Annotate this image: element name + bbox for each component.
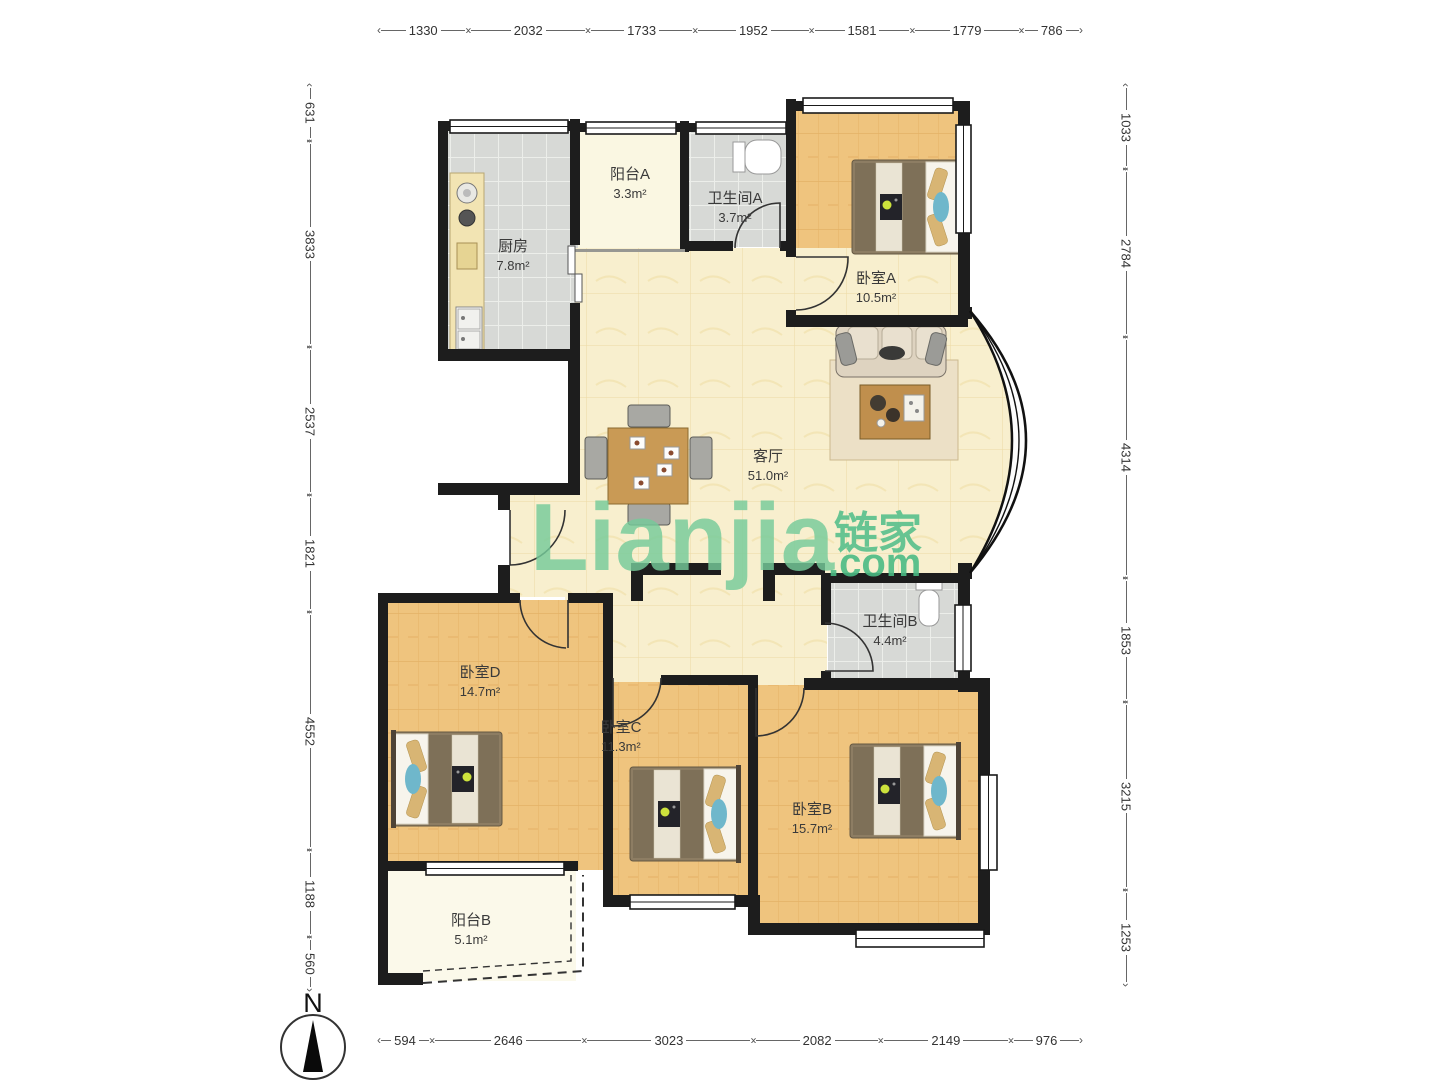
dimension-arrow-icon: ‹ [377, 1034, 381, 1046]
dimension-arrow-icon: ‹ [304, 935, 316, 939]
dimension-segment: ‹4552› [296, 612, 324, 850]
dimension-arrow-icon: ‹ [1120, 83, 1132, 87]
dimension-segment: ‹1821› [296, 495, 324, 611]
dimension-arrow-icon: › [1120, 983, 1132, 987]
dimension-value: 976 [1033, 1034, 1061, 1047]
dimension-segment: ‹1952› [695, 16, 811, 44]
dimension-segment: ‹1188› [296, 850, 324, 937]
toilet-bath-a [733, 140, 781, 174]
dimension-segment: ‹3215› [1112, 702, 1140, 891]
dimension-segment: ‹1330› [378, 16, 468, 44]
dimension-value: 1033 [1120, 110, 1133, 145]
dimension-arrow-icon: ‹ [752, 1034, 756, 1046]
dimension-value: 594 [391, 1034, 419, 1047]
dimension-arrow-icon: ‹ [304, 493, 316, 497]
compass-needle-icon [303, 1020, 323, 1072]
dimension-segment: ‹2149› [881, 1026, 1011, 1054]
dimension-segment: ‹1853› [1112, 578, 1140, 701]
dimension-arrow-icon: ‹ [1021, 24, 1025, 36]
dimension-segment: ‹2646› [432, 1026, 584, 1054]
dimension-arrow-icon: ‹ [1120, 888, 1132, 892]
dimension-arrow-icon: ‹ [1120, 335, 1132, 339]
dimension-value: 1853 [1120, 623, 1133, 658]
dimension-value: 1952 [736, 24, 771, 37]
dimension-line-bottom: ‹594›‹2646›‹3023›‹2082›‹2149›‹976› [378, 1026, 1082, 1054]
dimension-segment: ‹1779› [912, 16, 1021, 44]
dimension-arrow-icon: ‹ [587, 24, 591, 36]
dimension-segment: ‹1033› [1112, 85, 1140, 169]
dimension-arrow-icon: ‹ [304, 139, 316, 143]
dimension-segment: ‹2537› [296, 347, 324, 495]
dimension-value: 2646 [491, 1034, 526, 1047]
bed-c [630, 765, 741, 863]
dimension-value: 1733 [624, 24, 659, 37]
dimension-value: 631 [304, 99, 317, 127]
dimension-segment: ‹1253› [1112, 890, 1140, 985]
dimension-arrow-icon: ‹ [431, 1034, 435, 1046]
dimension-segment: ‹631› [296, 85, 324, 141]
dimension-value: 786 [1038, 24, 1066, 37]
dimension-arrow-icon: ‹ [304, 345, 316, 349]
label-bath-b: 卫生间B 4.4m² [862, 610, 917, 648]
dimension-arrow-icon: ‹ [1120, 700, 1132, 704]
sofa-set [830, 325, 958, 460]
dimension-arrow-icon: ‹ [583, 1034, 587, 1046]
dimension-value: 2032 [511, 24, 546, 37]
dimension-segment: ‹3833› [296, 141, 324, 347]
label-bath-a: 卫生间A 3.7m² [707, 187, 762, 225]
dimension-segment: ‹2032› [468, 16, 588, 44]
dimension-value: 3215 [1120, 779, 1133, 814]
dimension-arrow-icon: ‹ [1120, 167, 1132, 171]
dimension-segment: ‹594› [378, 1026, 432, 1054]
label-bed-d: 卧室D 14.7m² [460, 661, 501, 699]
dimension-value: 1779 [950, 24, 985, 37]
dimension-line-right: ‹1033›‹2784›‹4314›‹1853›‹3215›‹1253› [1112, 85, 1140, 985]
dimension-value: 3833 [304, 227, 317, 262]
label-kitchen: 厨房 7.8m² [496, 235, 529, 273]
dimension-line-left: ‹631›‹3833›‹2537›‹1821›‹4552›‹1188›‹560› [296, 85, 324, 990]
dimension-segment: ‹1733› [588, 16, 695, 44]
dimension-arrow-icon: ‹ [811, 24, 815, 36]
dimension-segment: ‹976› [1011, 1026, 1082, 1054]
dimension-line-top: ‹1330›‹2032›‹1733›‹1952›‹1581›‹1779›‹786… [378, 16, 1082, 44]
dimension-value: 2149 [928, 1034, 963, 1047]
bed-b [850, 742, 961, 840]
dimension-segment: ‹1581› [812, 16, 913, 44]
compass-icon [280, 1014, 346, 1080]
dimension-segment: ‹3023› [584, 1026, 753, 1054]
dimension-arrow-icon: ‹ [467, 24, 471, 36]
dimension-arrow-icon: ‹ [304, 610, 316, 614]
dimension-arrow-icon: ‹ [911, 24, 915, 36]
dimension-value: 1581 [845, 24, 880, 37]
dimension-segment: ‹2784› [1112, 169, 1140, 337]
label-balcony-a: 阳台A 3.3m² [610, 163, 650, 201]
dimension-arrow-icon: ‹ [1120, 576, 1132, 580]
label-balcony-b: 阳台B 5.1m² [451, 909, 491, 947]
label-living: 客厅 51.0m² [748, 445, 788, 483]
dimension-segment: ‹4314› [1112, 337, 1140, 578]
dimension-arrow-icon: ‹ [1010, 1034, 1014, 1046]
dimension-arrow-icon: › [1079, 1034, 1083, 1046]
dimension-segment: ‹560› [296, 937, 324, 990]
dimension-arrow-icon: ‹ [880, 1034, 884, 1046]
toilet-bath-b [916, 578, 942, 626]
dimension-arrow-icon: ‹ [304, 848, 316, 852]
dimension-value: 1330 [406, 24, 441, 37]
dimension-segment: ‹2082› [753, 1026, 880, 1054]
dimension-value: 2082 [800, 1034, 835, 1047]
dimension-value: 3023 [651, 1034, 686, 1047]
dimension-arrow-icon: › [1079, 24, 1083, 36]
dimension-value: 560 [304, 950, 317, 978]
dimension-value: 1253 [1120, 920, 1133, 955]
dimension-value: 1821 [304, 536, 317, 571]
dimension-value: 2784 [1120, 236, 1133, 271]
label-bed-c: 卧室C 11.3m² [601, 716, 642, 754]
dimension-value: 4314 [1120, 440, 1133, 475]
kitchen-counter [450, 173, 484, 359]
floorplan-canvas: 厨房 7.8m² 阳台A 3.3m² 卫生间A 3.7m² 卧室A 10.5m²… [378, 85, 1082, 1010]
bed-a [852, 158, 963, 256]
dimension-arrow-icon: ‹ [304, 83, 316, 87]
bed-d [391, 730, 502, 828]
dimension-value: 2537 [304, 404, 317, 439]
floorplan-page: { "watermark": { "latin": "Lianjia", "cj… [0, 0, 1440, 1080]
dimension-arrow-icon: ‹ [694, 24, 698, 36]
dimension-segment: ‹786› [1022, 16, 1082, 44]
threshold-balcony-a [575, 249, 685, 252]
dimension-arrow-icon: ‹ [377, 24, 381, 36]
dimension-value: 1188 [304, 877, 317, 911]
label-bed-b: 卧室B 15.7m² [792, 798, 832, 836]
label-bed-a: 卧室A 10.5m² [856, 267, 896, 305]
dimension-value: 4552 [304, 714, 317, 749]
